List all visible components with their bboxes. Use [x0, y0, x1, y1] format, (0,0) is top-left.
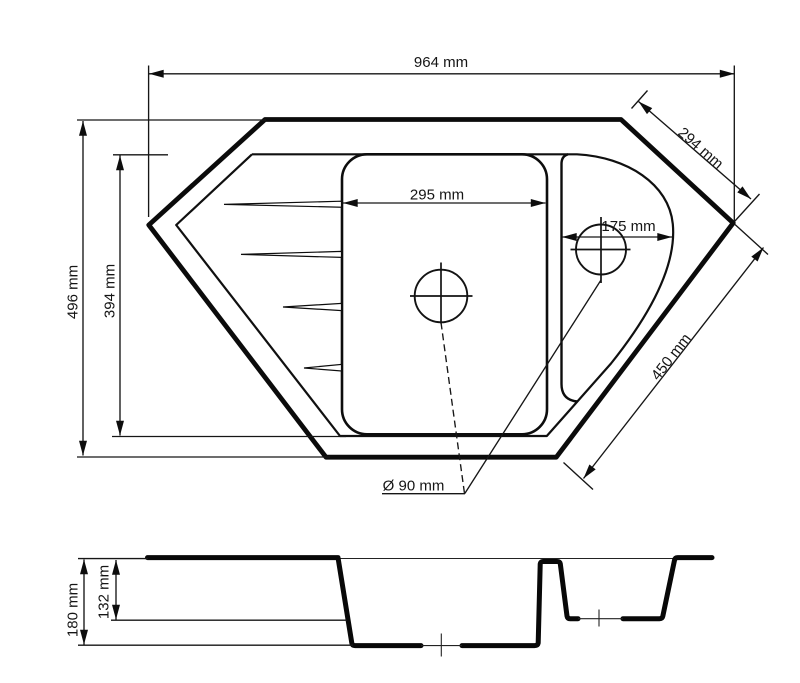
- svg-text:Ø 90 mm: Ø 90 mm: [383, 478, 445, 495]
- svg-text:294 mm: 294 mm: [674, 124, 726, 172]
- svg-text:175 mm: 175 mm: [601, 218, 655, 235]
- svg-text:496 mm: 496 mm: [65, 265, 82, 319]
- svg-text:394 mm: 394 mm: [102, 264, 119, 318]
- svg-text:295 mm: 295 mm: [410, 187, 464, 204]
- svg-text:964 mm: 964 mm: [414, 54, 468, 71]
- svg-text:450 mm: 450 mm: [648, 330, 695, 383]
- svg-text:132 mm: 132 mm: [96, 565, 113, 619]
- svg-text:180 mm: 180 mm: [65, 583, 82, 637]
